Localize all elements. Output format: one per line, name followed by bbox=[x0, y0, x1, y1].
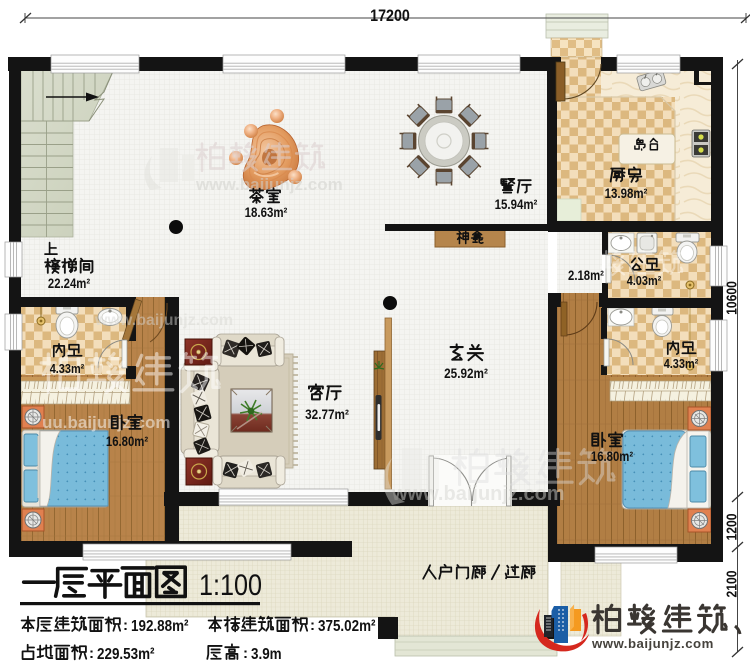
svg-text:16.80m²: 16.80m² bbox=[106, 434, 148, 449]
svg-text:www.baijunjz.com: www.baijunjz.com bbox=[591, 636, 714, 651]
svg-text:www.baijunjz.com: www.baijunjz.com bbox=[391, 483, 565, 505]
svg-text:uu.baijunjz.com: uu.baijunjz.com bbox=[42, 413, 170, 432]
svg-text::: : bbox=[243, 645, 248, 662]
svg-text:13.98m²: 13.98m² bbox=[605, 185, 648, 201]
svg-text:375.02m²: 375.02m² bbox=[318, 618, 376, 635]
svg-text:16.80m²: 16.80m² bbox=[591, 449, 633, 464]
svg-text:4.03m²: 4.03m² bbox=[627, 273, 662, 288]
svg-text:15.94m²: 15.94m² bbox=[495, 196, 538, 212]
svg-text:17200: 17200 bbox=[370, 7, 410, 25]
svg-text:22.24m²: 22.24m² bbox=[48, 276, 90, 291]
svg-text:4.33m²: 4.33m² bbox=[664, 356, 699, 371]
svg-text:10600: 10600 bbox=[724, 281, 740, 315]
svg-text::: : bbox=[123, 617, 128, 634]
svg-text:2.18m²: 2.18m² bbox=[568, 268, 604, 283]
svg-text:18.63m²: 18.63m² bbox=[245, 204, 288, 220]
svg-text:3.9m: 3.9m bbox=[251, 646, 282, 663]
svg-text:4.33m²: 4.33m² bbox=[50, 361, 85, 376]
svg-text:1200: 1200 bbox=[724, 513, 740, 540]
svg-text::: : bbox=[89, 645, 94, 662]
svg-text:1:100: 1:100 bbox=[199, 568, 262, 602]
svg-text::: : bbox=[310, 617, 315, 634]
svg-text:192.88m²: 192.88m² bbox=[131, 618, 189, 635]
svg-text:www.baijunjz.com: www.baijunjz.com bbox=[94, 312, 233, 329]
svg-text:25.92m²: 25.92m² bbox=[444, 365, 488, 381]
svg-text:229.53m²: 229.53m² bbox=[97, 646, 155, 663]
svg-text:32.77m²: 32.77m² bbox=[305, 406, 349, 422]
svg-text:2100: 2100 bbox=[724, 570, 740, 597]
